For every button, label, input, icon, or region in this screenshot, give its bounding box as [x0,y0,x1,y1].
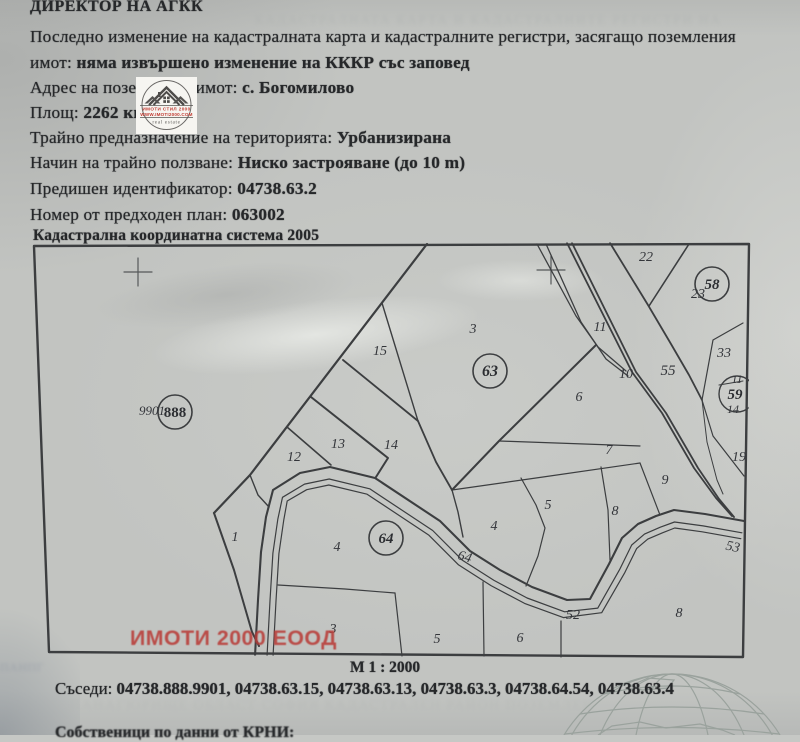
svg-text:8: 8 [676,606,683,621]
svg-text:14: 14 [384,438,398,453]
svg-text:11: 11 [731,372,742,386]
svg-text:14: 14 [727,402,739,416]
svg-text:9901: 9901 [139,403,165,418]
svg-text:1: 1 [232,530,239,545]
svg-text:6: 6 [576,390,583,405]
svg-text:64: 64 [456,548,474,566]
svg-text:15: 15 [373,344,387,359]
svg-text:23: 23 [691,287,705,302]
svg-text:8: 8 [612,504,619,519]
svg-text:4: 4 [491,519,498,534]
svg-text:55: 55 [661,363,677,379]
svg-text:5: 5 [545,498,552,513]
svg-text:22: 22 [639,250,653,265]
svg-text:19: 19 [732,450,746,465]
svg-text:9: 9 [662,473,669,488]
svg-text:53: 53 [724,539,741,557]
svg-text:888: 888 [164,405,187,421]
svg-text:58: 58 [705,277,721,293]
svg-text:52: 52 [566,608,580,623]
svg-text:3: 3 [469,322,477,337]
svg-text:6: 6 [517,631,524,646]
svg-text:33: 33 [716,346,731,361]
svg-text:4: 4 [334,540,341,555]
svg-text:5: 5 [434,632,441,647]
svg-text:13: 13 [331,437,345,452]
svg-text:7: 7 [606,443,614,458]
svg-text:12: 12 [287,450,301,465]
svg-text:64: 64 [379,531,395,547]
svg-text:10: 10 [619,367,633,382]
svg-text:59: 59 [728,387,744,403]
svg-text:11: 11 [594,320,607,335]
svg-text:63: 63 [482,363,498,380]
